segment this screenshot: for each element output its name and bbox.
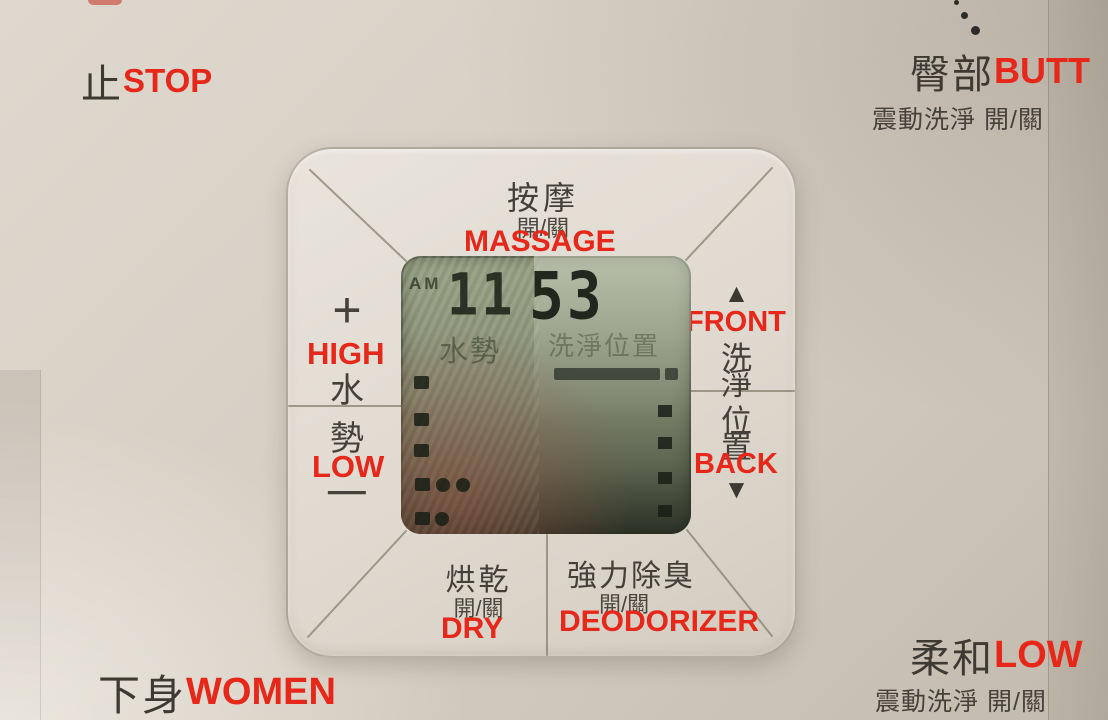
position-lcd-label: 洗淨位置 [548, 326, 660, 363]
women-wash-button[interactable]: 下身 WOMEN [98, 662, 336, 720]
soft-sub-label: 震動洗淨 開/關 [875, 682, 1047, 718]
pressure-lcd-label: 水勢 [439, 328, 501, 370]
women-annotation: WOMEN [186, 671, 336, 714]
soft-annotation: LOW [994, 634, 1083, 677]
control-panel-photo: 止 STOP 臀部 BUTT 震動洗淨 開/關 下身 WOMEN 柔和 LOW … [0, 0, 1108, 720]
down-arrow-icon: ▼ [680, 474, 793, 505]
position-level-indicator [658, 505, 672, 517]
butt-label-zh: 臀部 [910, 42, 994, 100]
pressure-dot-indicator [435, 512, 449, 526]
plus-icon: + [290, 281, 404, 339]
position-level-indicator [658, 472, 672, 484]
wash-position-back-button[interactable]: 位 置 BACK ▼ [680, 394, 793, 544]
deodorizer-annotation: DEODORIZER [559, 605, 759, 639]
pressure-dot-indicator [436, 478, 450, 492]
massage-annotation: MASSAGE [464, 225, 616, 259]
stop-annotation: STOP [123, 62, 212, 100]
soft-mode-button[interactable]: 柔和 LOW [910, 626, 1083, 684]
soft-label-zh: 柔和 [910, 626, 994, 684]
water-pressure-up-button[interactable]: + HIGH 水 [290, 257, 404, 407]
women-label-zh: 下身 [98, 662, 186, 720]
position-level-bar [554, 368, 660, 380]
time-meridiem: AM [409, 274, 441, 294]
butt-wash-button[interactable]: 臀部 BUTT [910, 42, 1090, 100]
up-arrow-icon: ▲ [680, 278, 793, 309]
butt-annotation: BUTT [994, 50, 1090, 92]
pressure-level-indicator [415, 478, 430, 491]
pressure-level-indicator [414, 376, 429, 389]
lcd-display: AM 11 53 水勢 洗淨位置 [401, 256, 691, 534]
stop-button[interactable]: 止 STOP [81, 52, 212, 110]
pressure-level-indicator [414, 444, 429, 457]
panel-left-edge [0, 370, 41, 720]
massage-button[interactable]: 按摩 開/關 MASSAGE [408, 153, 678, 256]
pressure-dot-indicator [456, 478, 470, 492]
wash-position-front-button[interactable]: ▲ FRONT 洗 淨 [680, 254, 793, 394]
cutoff-red-annotation [88, 0, 122, 5]
control-pad: 按摩 開/關 MASSAGE + HIGH 水 勢 LOW − ▲ FRONT … [286, 147, 797, 658]
stop-label-zh: 止 [81, 52, 123, 110]
time-hours: 11 [447, 262, 516, 329]
position-level-indicator [658, 405, 672, 417]
pressure-level-indicator [415, 512, 430, 525]
pressure-char-water: 水 [290, 363, 404, 412]
position-level-bar-end [665, 368, 678, 380]
water-pressure-down-button[interactable]: 勢 LOW − [290, 407, 404, 557]
butt-sub-label: 震動洗淨 開/關 [872, 100, 1044, 136]
pressure-level-indicator [414, 413, 429, 426]
dry-annotation: DRY [441, 612, 503, 646]
panel-right-crease [1048, 0, 1108, 720]
position-level-indicator [658, 437, 672, 449]
time-minutes: 53 [529, 258, 605, 334]
deodorizer-button[interactable]: 強力除臭 開/關 DEODORIZER [549, 531, 709, 652]
dry-button[interactable]: 烘乾 開/關 DRY [410, 531, 547, 652]
